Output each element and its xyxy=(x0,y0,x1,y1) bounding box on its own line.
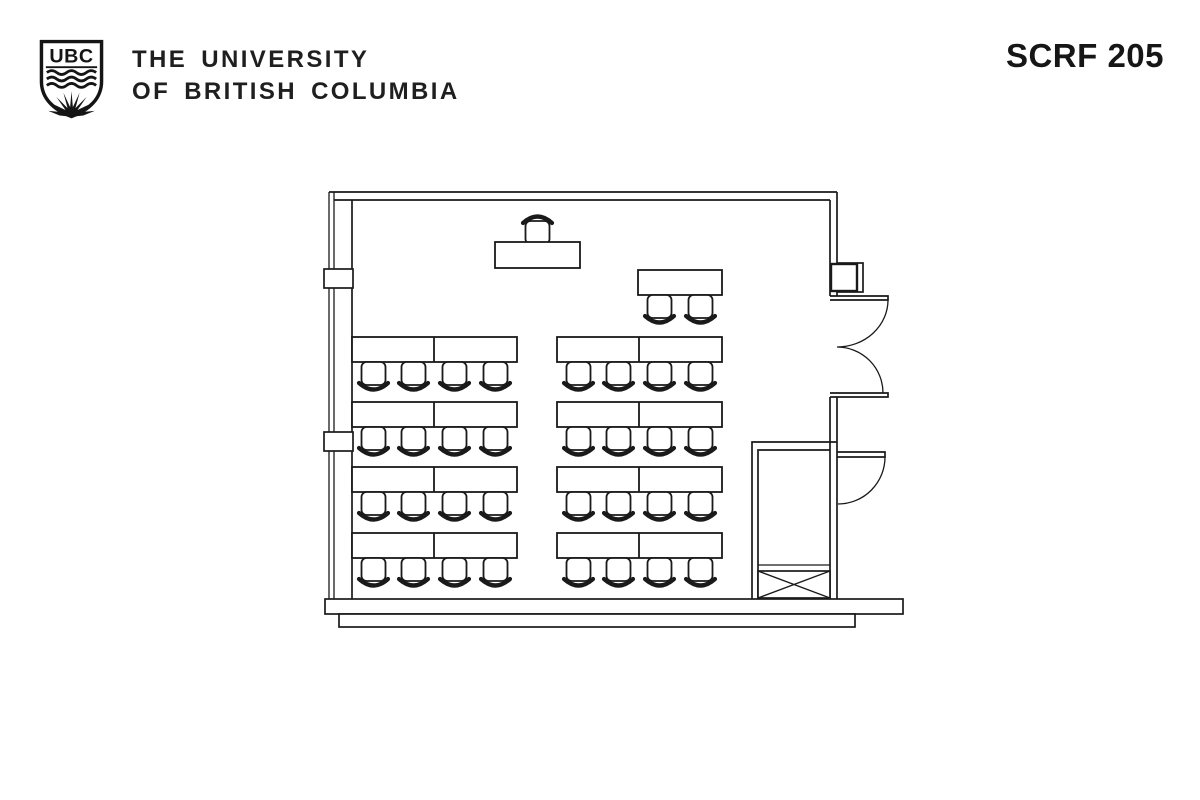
student-table xyxy=(352,337,517,362)
student-table xyxy=(557,533,722,558)
student-chair xyxy=(645,558,674,586)
student-table xyxy=(352,533,517,558)
side-table-chair xyxy=(645,295,674,323)
right-wall-lower xyxy=(830,397,837,599)
student-chair xyxy=(604,362,633,390)
instructor-table xyxy=(495,242,580,268)
student-chair xyxy=(359,427,388,455)
student-chair xyxy=(481,558,510,586)
student-table xyxy=(352,402,517,427)
side-table-chair xyxy=(686,295,715,323)
side-table xyxy=(638,270,722,295)
student-chair xyxy=(686,558,715,586)
student-chair xyxy=(686,427,715,455)
student-chair xyxy=(686,362,715,390)
page: UBC THE UNIVERSITY OF BRITISH COLUMBIA S… xyxy=(0,0,1200,800)
student-chair xyxy=(399,492,428,520)
bottom-walkway xyxy=(339,614,855,627)
student-chair xyxy=(686,492,715,520)
student-chair xyxy=(604,558,633,586)
single-door-leaf xyxy=(837,452,885,457)
student-chair xyxy=(440,492,469,520)
student-chair xyxy=(604,492,633,520)
student-chair xyxy=(440,558,469,586)
student-chair xyxy=(481,492,510,520)
floor-plan xyxy=(0,0,1200,800)
student-chair xyxy=(645,427,674,455)
double-door-swing xyxy=(837,300,888,393)
closet-crossbox xyxy=(758,571,830,598)
student-chair xyxy=(399,362,428,390)
student-chair xyxy=(399,427,428,455)
student-table xyxy=(557,467,722,492)
window-mullion-2 xyxy=(324,432,353,451)
window-mullion-1 xyxy=(324,269,353,288)
student-chair xyxy=(481,362,510,390)
top-wall xyxy=(329,192,837,200)
furniture-layer xyxy=(352,217,722,586)
student-chair xyxy=(359,558,388,586)
wall-box xyxy=(831,264,857,291)
student-table xyxy=(557,337,722,362)
single-door-swing xyxy=(838,457,885,504)
student-chair xyxy=(399,558,428,586)
student-chair xyxy=(645,362,674,390)
student-chair xyxy=(564,558,593,586)
bottom-wall xyxy=(325,599,903,614)
student-chair xyxy=(359,492,388,520)
student-chair xyxy=(440,427,469,455)
student-chair xyxy=(645,492,674,520)
student-chair xyxy=(564,427,593,455)
student-chair xyxy=(604,427,633,455)
window-glazing xyxy=(329,192,334,599)
student-table xyxy=(352,467,517,492)
student-chair xyxy=(359,362,388,390)
student-chair xyxy=(481,427,510,455)
student-chair xyxy=(440,362,469,390)
instructor-chair xyxy=(523,217,552,245)
student-chair xyxy=(564,492,593,520)
student-table xyxy=(557,402,722,427)
student-chair xyxy=(564,362,593,390)
